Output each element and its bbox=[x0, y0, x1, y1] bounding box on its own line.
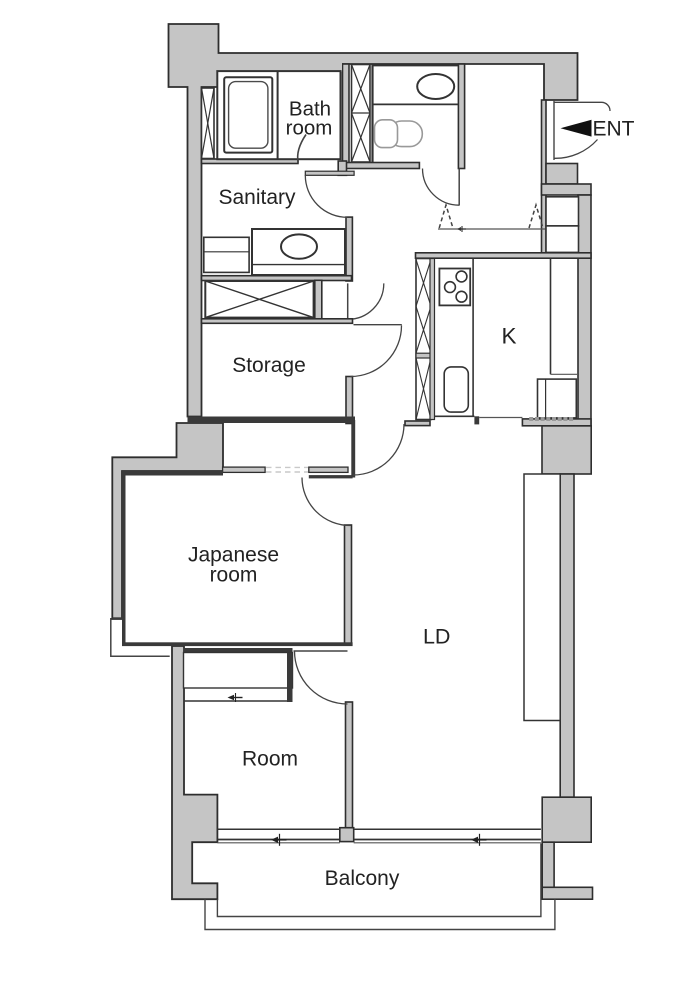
svg-text:room: room bbox=[210, 564, 258, 587]
svg-text:Storage: Storage bbox=[232, 354, 306, 377]
svg-text:Balcony: Balcony bbox=[325, 867, 400, 890]
svg-text:Room: Room bbox=[242, 748, 298, 771]
svg-text:Sanitary: Sanitary bbox=[218, 186, 296, 209]
svg-text:room: room bbox=[286, 116, 333, 139]
svg-text:K: K bbox=[501, 324, 516, 349]
svg-text:LD: LD bbox=[423, 625, 450, 649]
svg-text:ENT: ENT bbox=[593, 118, 635, 141]
